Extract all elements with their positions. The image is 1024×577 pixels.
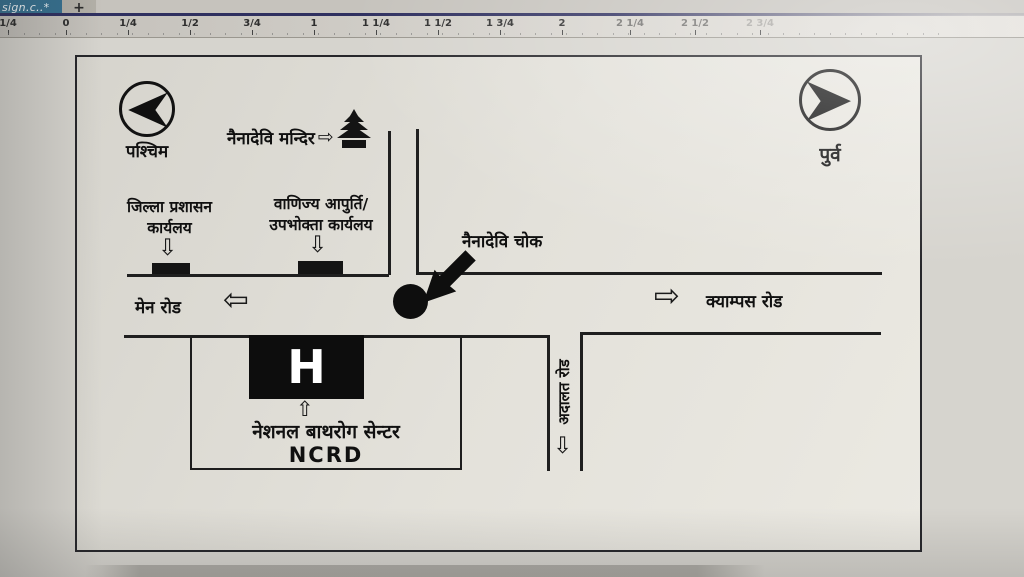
ruler-minor-tick (644, 33, 645, 35)
commerce-office-label: वाणिज्य आपुर्ति/ उपभोक्ता कार्यलय (247, 194, 395, 236)
map-frame: पश्चिम पुर्व नैनादेवि मन्दिर ⇨ जिल्ला (75, 55, 922, 552)
ruler-minor-tick (365, 33, 366, 35)
court-road-down-arrow-icon: ⇩ (553, 435, 572, 458)
tab-bar: sign.c..* + (0, 0, 1024, 15)
ruler-unit-label: 2 1/2 (681, 18, 709, 29)
ruler-major-tick (66, 30, 67, 35)
ruler-minor-tick (706, 33, 707, 35)
ruler-minor-tick (566, 33, 567, 35)
district-admin-office-line1: जिल्ला प्रशासन (97, 197, 242, 218)
ruler-minor-tick (489, 33, 490, 35)
ruler-minor-tick (70, 33, 71, 35)
ruler-minor-tick (396, 33, 397, 35)
ruler-minor-tick (380, 33, 381, 35)
ruler-minor-tick (225, 33, 226, 35)
ruler-minor-tick (210, 33, 211, 35)
ruler-minor-tick (876, 33, 877, 35)
ruler-minor-tick (473, 33, 474, 35)
ruler-major-tick (500, 30, 501, 35)
commerce-office-line1: वाणिज्य आपुर्ति/ (247, 194, 395, 215)
chowk-dot (393, 284, 428, 319)
hospital-h-letter: H (287, 340, 326, 394)
ruler-unit-label: 1 (311, 18, 318, 29)
compass-west-circle (119, 81, 175, 137)
ncrd-name-nepali: नेशनल बाथरोग सेन्टर (187, 418, 465, 444)
ruler-major-tick (252, 30, 253, 35)
ruler-minor-tick (8, 33, 9, 35)
ruler-minor-tick (24, 33, 25, 35)
compass-east-label: पुर्व (770, 141, 890, 167)
tab-bar-underline (0, 13, 1024, 16)
district-admin-office-label: जिल्ला प्रशासन कार्यलय (97, 197, 242, 239)
ruler-minor-tick (799, 33, 800, 35)
ruler-minor-tick (117, 33, 118, 35)
ruler-unit-label: 2 (559, 18, 566, 29)
ruler-minor-tick (86, 33, 87, 35)
horizontal-ruler: 1/401/41/23/411 1/41 1/21 3/422 1/42 1/2… (0, 16, 1024, 38)
temple-icon (337, 109, 371, 149)
ruler-minor-tick (349, 33, 350, 35)
temple-label: नैनादेवि मन्दिर (227, 126, 315, 149)
campus-road-east-arrow-icon: ⇨ (654, 281, 680, 312)
screen-bottom-shadow (85, 565, 765, 577)
ruler-major-tick (760, 30, 761, 35)
ruler-minor-tick (241, 33, 242, 35)
ruler-minor-tick (628, 33, 629, 35)
ruler-minor-tick (768, 33, 769, 35)
ruler-minor-tick (163, 33, 164, 35)
ruler-minor-tick (132, 33, 133, 35)
ruler-major-tick (190, 30, 191, 35)
ruler-unit-label: 1 3/4 (486, 18, 514, 29)
compass-east-circle (799, 69, 861, 131)
ruler-minor-tick (845, 33, 846, 35)
ruler-minor-tick (830, 33, 831, 35)
ruler-minor-tick (442, 33, 443, 35)
main-road-top-line-right (419, 272, 882, 275)
ruler-minor-tick (39, 33, 40, 35)
ruler-minor-tick (551, 33, 552, 35)
ruler-minor-tick (752, 33, 753, 35)
ruler-minor-tick (287, 33, 288, 35)
main-road-bottom-line-right (580, 332, 881, 335)
ruler-minor-tick (272, 33, 273, 35)
ruler-minor-tick (783, 33, 784, 35)
ruler-minor-tick (613, 33, 614, 35)
west-arrowhead-icon (122, 84, 172, 134)
ruler-minor-tick (892, 33, 893, 35)
ruler-unit-label: 0 (63, 18, 70, 29)
ruler-minor-tick (318, 33, 319, 35)
compass-west-label: पश्चिम (87, 139, 207, 162)
main-road-west-arrow-icon: ⇦ (223, 285, 249, 316)
ruler-major-tick (128, 30, 129, 35)
ruler-unit-label: 1 1/2 (424, 18, 452, 29)
ruler-minor-tick (737, 33, 738, 35)
ruler-major-tick (438, 30, 439, 35)
ncrd-name-acronym: NCRD (187, 443, 465, 467)
campus-road-label: क्याम्पस रोड (706, 289, 782, 312)
ruler-major-tick (314, 30, 315, 35)
ruler-minor-tick (303, 33, 304, 35)
ruler-minor-tick (659, 33, 660, 35)
ruler-minor-tick (334, 33, 335, 35)
ruler-minor-tick (861, 33, 862, 35)
ruler-minor-tick (179, 33, 180, 35)
ruler-minor-tick (504, 33, 505, 35)
ruler-minor-tick (923, 33, 924, 35)
ruler-unit-label: 2 3/4 (746, 18, 774, 29)
hospital-up-arrow-icon: ⇧ (296, 399, 314, 420)
court-road-label: अदालत रोड (554, 337, 574, 447)
main-road-label: मेन रोड (135, 295, 181, 318)
court-road-left-line (547, 335, 550, 471)
ruler-unit-label: 2 1/4 (616, 18, 644, 29)
ruler-minor-tick (938, 33, 939, 35)
plus-icon: + (73, 3, 85, 13)
document-canvas[interactable]: पश्चिम पुर्व नैनादेवि मन्दिर ⇨ जिल्ला (0, 38, 1024, 577)
commerce-building-marker (298, 261, 343, 275)
ruler-major-tick (376, 30, 377, 35)
ruler-minor-tick (458, 33, 459, 35)
district-admin-down-arrow-icon: ⇩ (158, 237, 177, 260)
ruler-major-tick (630, 30, 631, 35)
ruler-minor-tick (675, 33, 676, 35)
ruler-unit-label: 1 1/4 (362, 18, 390, 29)
main-road-top-line-left (127, 274, 389, 277)
ruler-minor-tick (194, 33, 195, 35)
east-arrowhead-icon (802, 72, 858, 128)
ruler-minor-tick (148, 33, 149, 35)
ruler-minor-tick (814, 33, 815, 35)
ruler-minor-tick (55, 33, 56, 35)
ruler-minor-tick (411, 33, 412, 35)
ruler-major-tick (695, 30, 696, 35)
ruler-minor-tick (535, 33, 536, 35)
ruler-minor-tick (690, 33, 691, 35)
ruler-minor-tick (427, 33, 428, 35)
ruler-minor-tick (721, 33, 722, 35)
ruler-minor-tick (597, 33, 598, 35)
temple-pointer-arrow-icon: ⇨ (318, 128, 334, 147)
ruler-unit-label: 1/2 (181, 18, 199, 29)
ruler-minor-tick (582, 33, 583, 35)
ruler-unit-label: 3/4 (243, 18, 261, 29)
commerce-down-arrow-icon: ⇩ (308, 234, 327, 257)
ruler-minor-tick (907, 33, 908, 35)
ruler-unit-label: 1/4 (119, 18, 137, 29)
ruler-minor-tick (520, 33, 521, 35)
ruler-unit-label: 1/4 (0, 18, 17, 29)
ruler-minor-tick (256, 33, 257, 35)
court-road-right-line (580, 332, 583, 471)
ruler-major-tick (562, 30, 563, 35)
hospital-h-sign: H (249, 335, 364, 399)
temple-row: नैनादेवि मन्दिर ⇨ (227, 125, 371, 149)
ruler-minor-tick (101, 33, 102, 35)
